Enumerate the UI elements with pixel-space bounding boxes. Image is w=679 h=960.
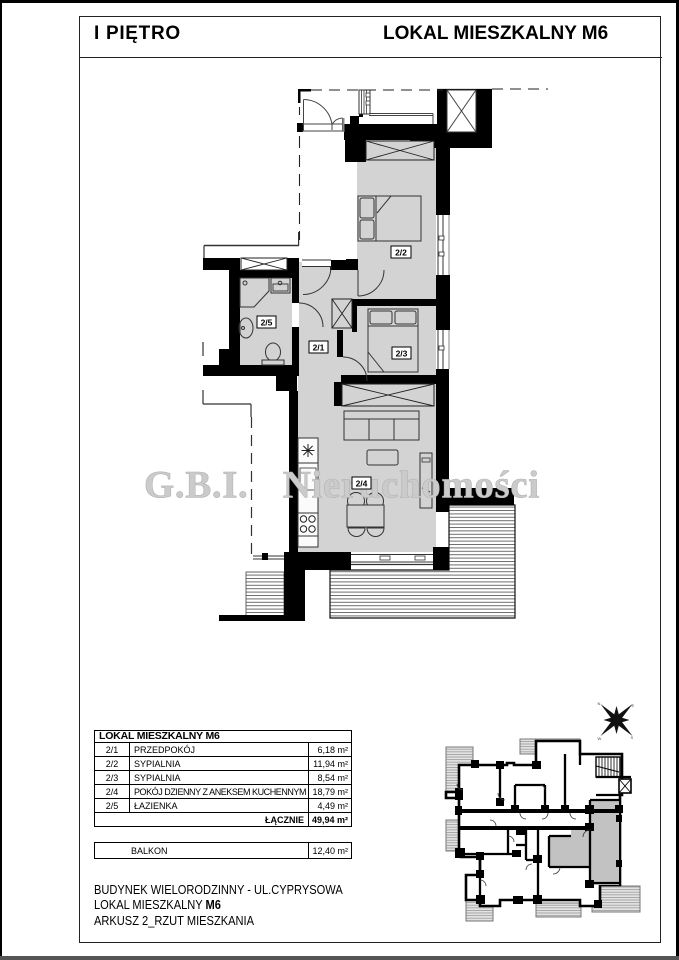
svg-text:N: N	[598, 701, 601, 706]
svg-text:2/4: 2/4	[356, 479, 368, 489]
svg-text:2/2: 2/2	[395, 248, 407, 258]
svg-text:W: W	[598, 736, 602, 741]
svg-text:G.B.I. Nieruchomości: G.B.I. Nieruchomości	[144, 464, 540, 507]
svg-text:2/3: 2/3	[396, 349, 408, 359]
svg-text:E: E	[632, 703, 635, 708]
svg-text:2/5: 2/5	[261, 318, 273, 328]
svg-text:S: S	[631, 735, 634, 740]
svg-text:2/1: 2/1	[313, 343, 325, 353]
